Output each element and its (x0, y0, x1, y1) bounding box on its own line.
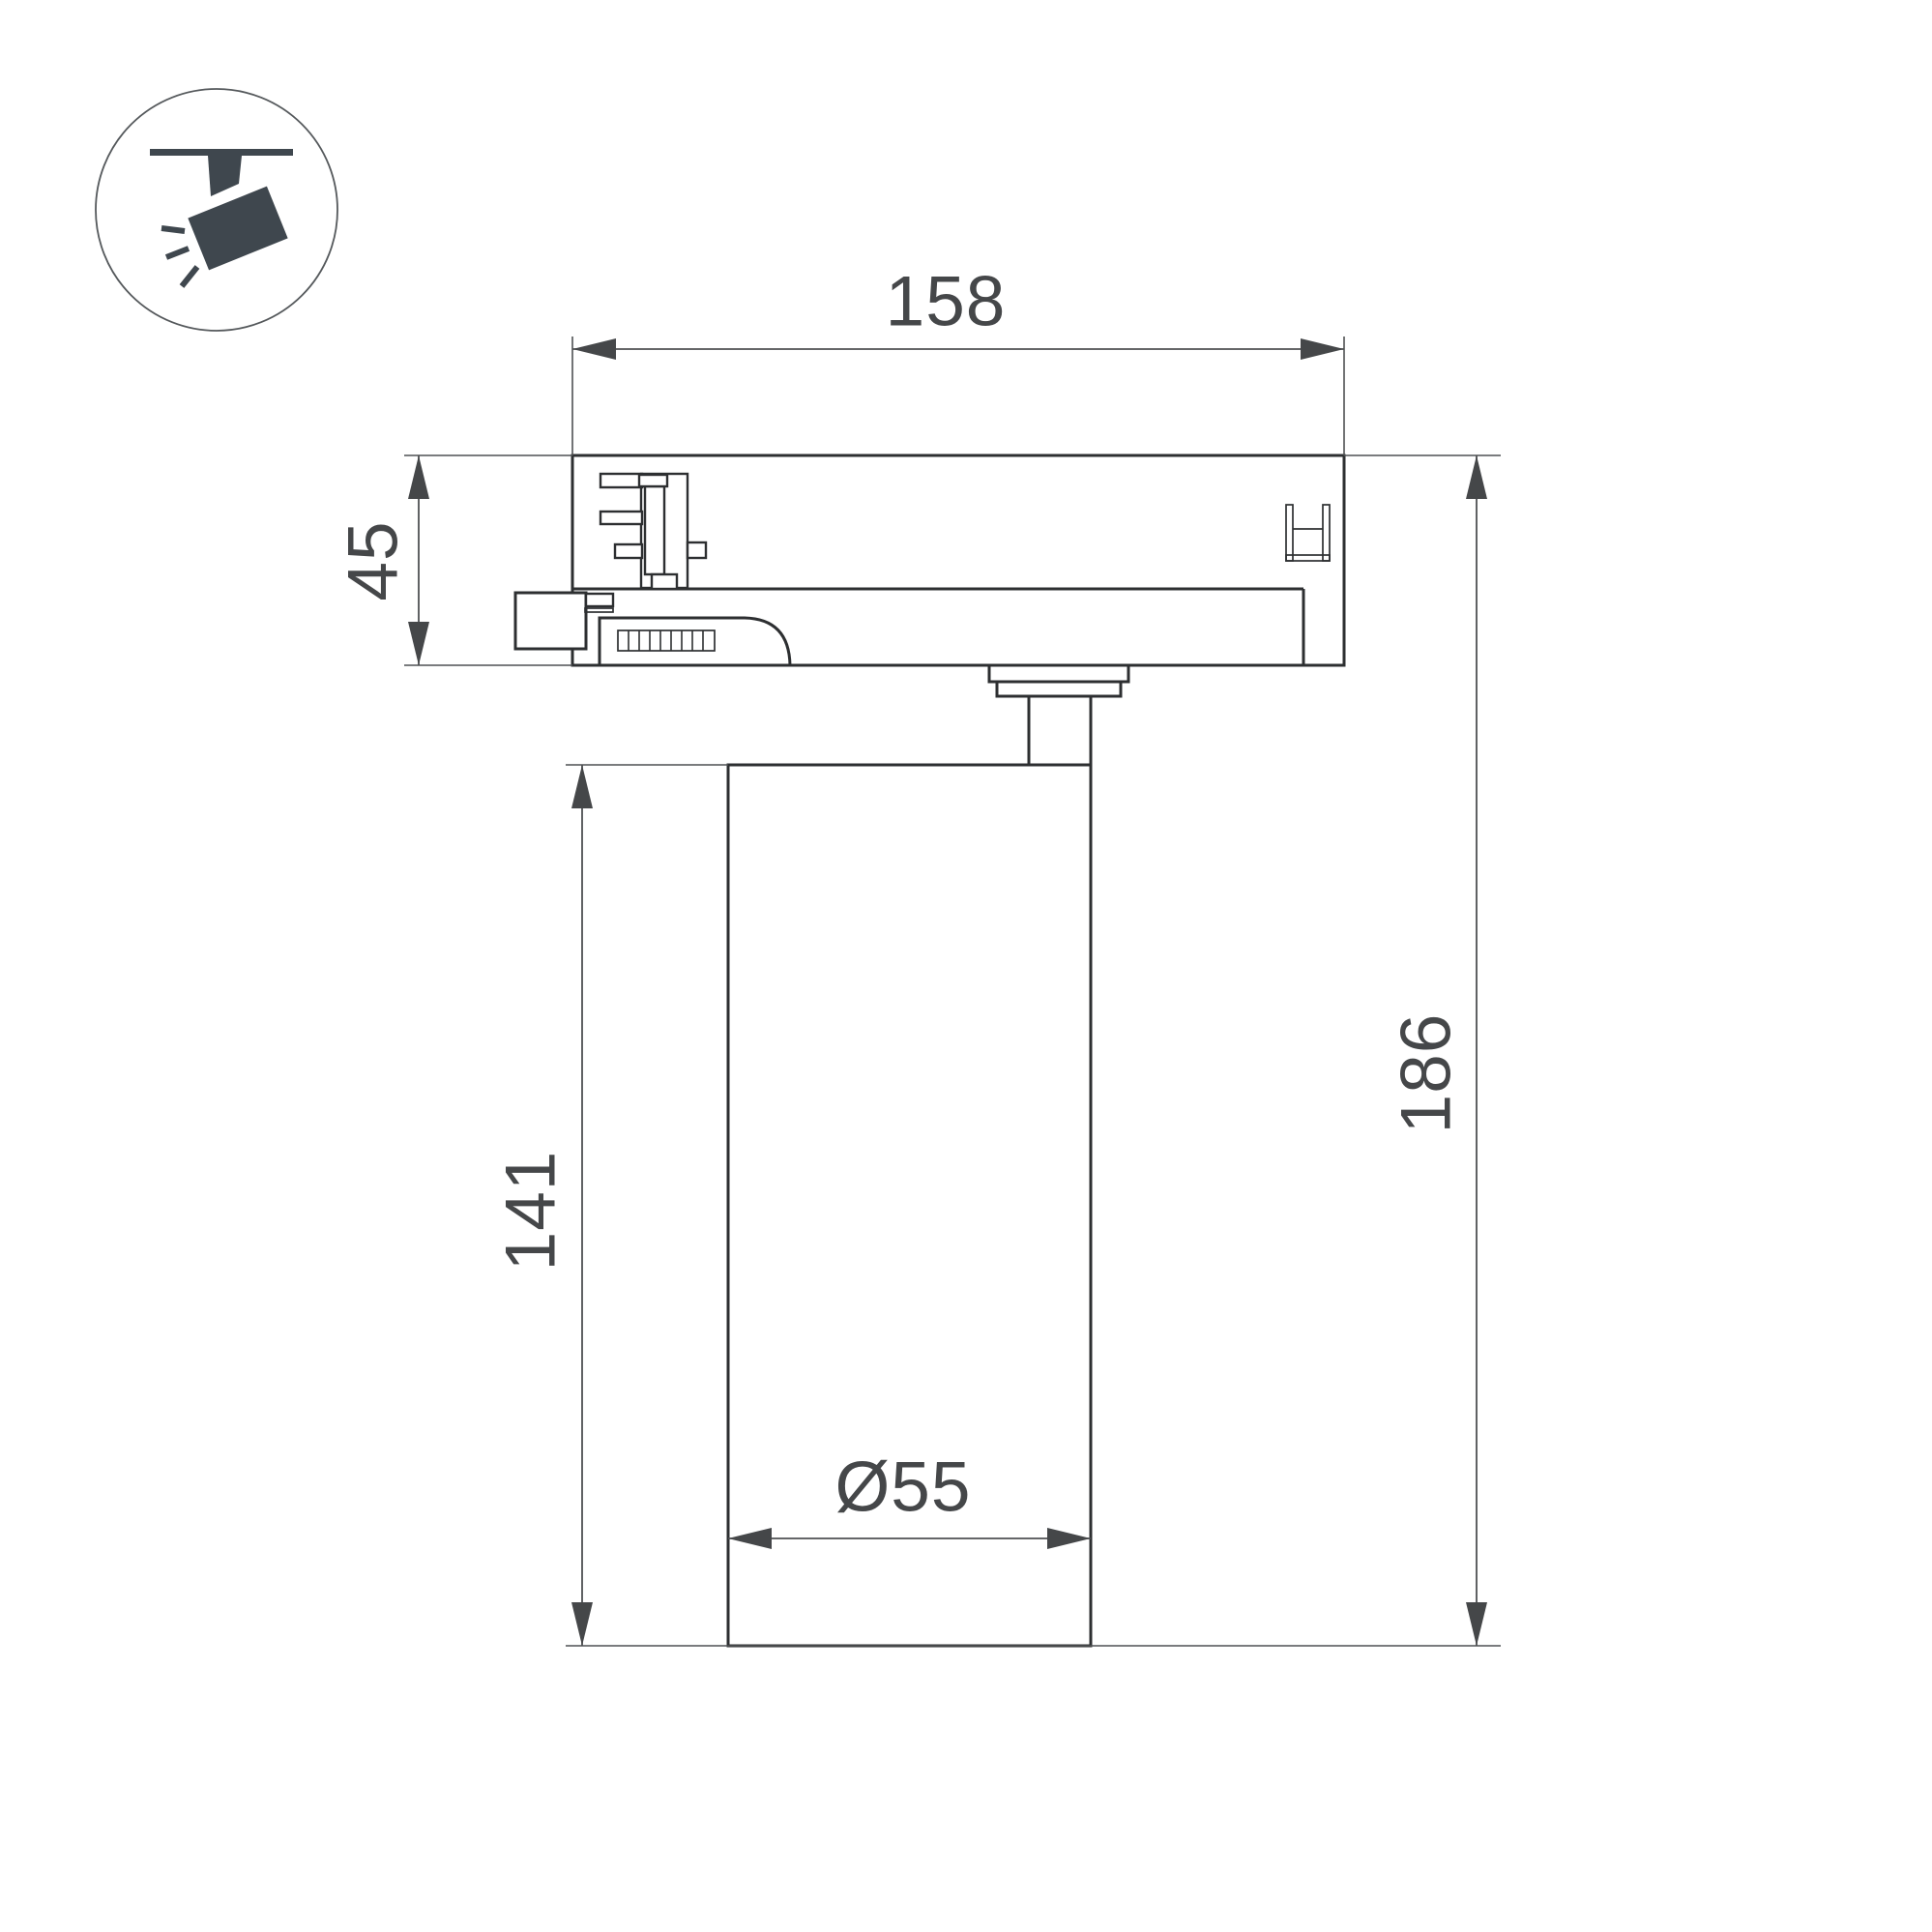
contact-foot (652, 574, 677, 589)
swivel-joint (989, 665, 1128, 765)
dimension-label-body-diameter: Ø55 (835, 1449, 972, 1527)
contact-side-notch (688, 542, 706, 558)
contact-prong-middle (600, 512, 642, 524)
contact-screw-cap (639, 475, 667, 486)
arrowhead-up-icon (571, 765, 593, 808)
arrowhead-down-icon (571, 1602, 593, 1646)
dimension-label-track-width: 158 (886, 263, 1007, 341)
arrowhead-left-icon (572, 338, 616, 360)
technical-drawing-canvas: 158 45 141 186 Ø55 (0, 0, 1932, 1932)
adjust-slider (600, 618, 790, 665)
arrowhead-up-icon (408, 455, 429, 499)
dimension-track-width: 158 (572, 263, 1344, 456)
swivel-step-upper (989, 665, 1128, 682)
technical-drawing-page: 158 45 141 186 Ø55 (0, 0, 1932, 1932)
track-spotlight-icon (96, 89, 337, 331)
arrowhead-down-icon (408, 622, 429, 665)
contact-screw-stem (645, 486, 664, 574)
swivel-stem (1029, 696, 1091, 765)
dimension-label-adapter-height: 45 (335, 520, 413, 600)
latch-knob (515, 593, 586, 649)
contact-prong-top (600, 474, 642, 487)
arrowhead-down-icon (1466, 1602, 1487, 1646)
dimension-label-total-height: 186 (1388, 1013, 1466, 1134)
swivel-step-lower (997, 682, 1121, 696)
dimension-total-height: 186 (1344, 455, 1501, 1646)
dimension-label-body-height: 141 (492, 1151, 571, 1272)
contact-prong-bottom (615, 544, 642, 558)
icon-track-bar (150, 149, 293, 156)
arrowhead-right-icon (1301, 338, 1344, 360)
arrowhead-up-icon (1466, 455, 1487, 499)
track-adapter (515, 455, 1344, 665)
latch-inner-block (586, 594, 613, 606)
